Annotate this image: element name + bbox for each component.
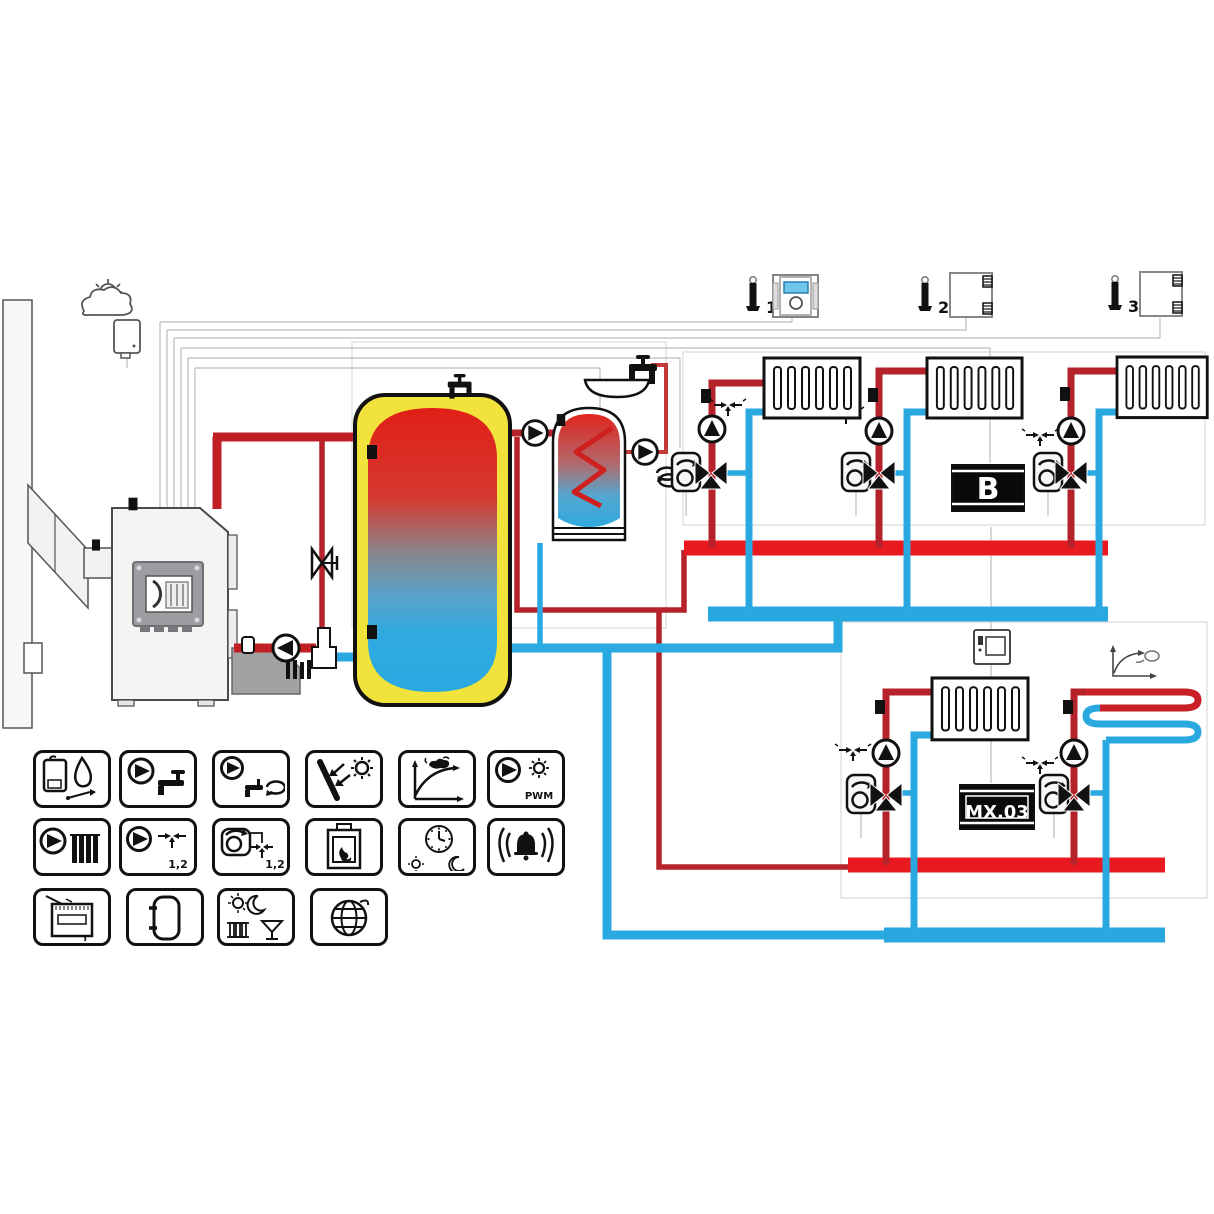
dhw-tank [553, 408, 625, 540]
icon-dhw-circulation-pump [212, 750, 290, 808]
boiler-controller [133, 562, 203, 632]
zone2-controller [974, 630, 1010, 664]
buffer-sensor-top [367, 445, 377, 459]
icon-internet-module [310, 888, 388, 946]
room-unit-1 [773, 275, 818, 317]
module-b-box: B [952, 465, 1024, 511]
basin-icon [585, 380, 649, 397]
icon-mixer-actuators-1-2: 1,2 [212, 818, 290, 876]
radiator-1 [764, 358, 860, 418]
thermostat-2-number: 2 [938, 298, 949, 317]
room-module-2 [950, 273, 992, 317]
room-unit-lcd [784, 282, 808, 293]
heating-circuit-4 [835, 700, 902, 813]
radiator-2 [927, 358, 1022, 418]
actuator-arrows-5 [1022, 757, 1058, 774]
icon-fireplace-boiler [305, 818, 383, 876]
circuit-pump-1 [699, 416, 725, 442]
icon-room-controller [33, 888, 111, 946]
boiler-pump [273, 635, 299, 661]
dhw-loading-pump [523, 421, 548, 446]
safety-fitting [242, 637, 254, 653]
pairs-label-a: 1,2 [168, 858, 188, 871]
icon-day-night-party-modes [217, 888, 295, 946]
heating-circuit-3 [1022, 387, 1087, 491]
pairs-label-b: 1,2 [265, 858, 285, 871]
icon-time-program [398, 818, 476, 876]
icon-alarm [487, 818, 565, 876]
circuit-pump-2 [866, 418, 892, 444]
flue-duct [28, 485, 112, 608]
room-thermostat-3: 3 [1108, 272, 1182, 316]
flue-sensor [92, 539, 100, 550]
schematic-canvas: B MX.03 1 [0, 0, 1214, 1214]
flow-sensor-1 [701, 389, 711, 403]
dhw-circulation-pump [633, 440, 658, 465]
room-module-3 [1140, 272, 1182, 316]
outdoor-sensor [114, 320, 140, 358]
heating-curve-sketch [1110, 645, 1159, 679]
icon-pump-valves-1-2: 1,2 [119, 818, 197, 876]
circuit-pump-3 [1058, 418, 1084, 444]
thermostat-3-number: 3 [1128, 297, 1139, 316]
icon-buffer-tank [126, 888, 204, 946]
boiler-sensor [129, 498, 138, 511]
hydraulic-heating-diagram: B MX.03 1 [0, 0, 1214, 1214]
buffer-tank [355, 374, 510, 705]
buffer-sensor-bottom [367, 625, 377, 639]
flow-sensor-3 [1060, 387, 1070, 401]
actuator-arrows-3 [1022, 429, 1058, 446]
dhw-draw-point [585, 355, 657, 397]
circuit-pump-4 [873, 740, 899, 766]
module-mx03-box: MX.03 [960, 785, 1034, 829]
icon-solar-collector [305, 750, 383, 808]
flow-sensor-5 [1063, 700, 1073, 714]
flow-sensor-2 [868, 388, 878, 402]
thermometer-icon-1 [746, 277, 760, 311]
radiator-4 [932, 678, 1028, 740]
room-thermostat-2: 2 [918, 273, 992, 317]
circuit-pump-5 [1061, 740, 1087, 766]
return-fitting-t [312, 628, 336, 668]
floor-heating-coil-cold [1086, 708, 1198, 740]
dhw-sensor [557, 414, 566, 426]
floor-heating-coil-hot [1086, 692, 1198, 708]
room-thermostat-1: 1 [746, 275, 818, 317]
module-b-label: B [977, 472, 1000, 507]
pellet-burner [232, 648, 311, 694]
thermometer-icon-3 [1108, 276, 1122, 310]
icon-pwm-solar-pump: PWM [487, 750, 565, 808]
flow-sensor-4 [875, 700, 885, 714]
room-unit-knob [790, 297, 802, 309]
icon-heating-curve [398, 750, 476, 808]
icon-boiler-burner-control [33, 750, 111, 808]
radiator-3 [1117, 357, 1207, 418]
pwm-label: PWM [525, 791, 553, 802]
icon-dhw-pump [119, 750, 197, 808]
thermometer-icon-2 [918, 277, 932, 311]
icon-heating-circuit-pump [33, 818, 111, 876]
weather-icon [82, 279, 132, 315]
module-mx03-label: MX.03 [965, 802, 1029, 823]
